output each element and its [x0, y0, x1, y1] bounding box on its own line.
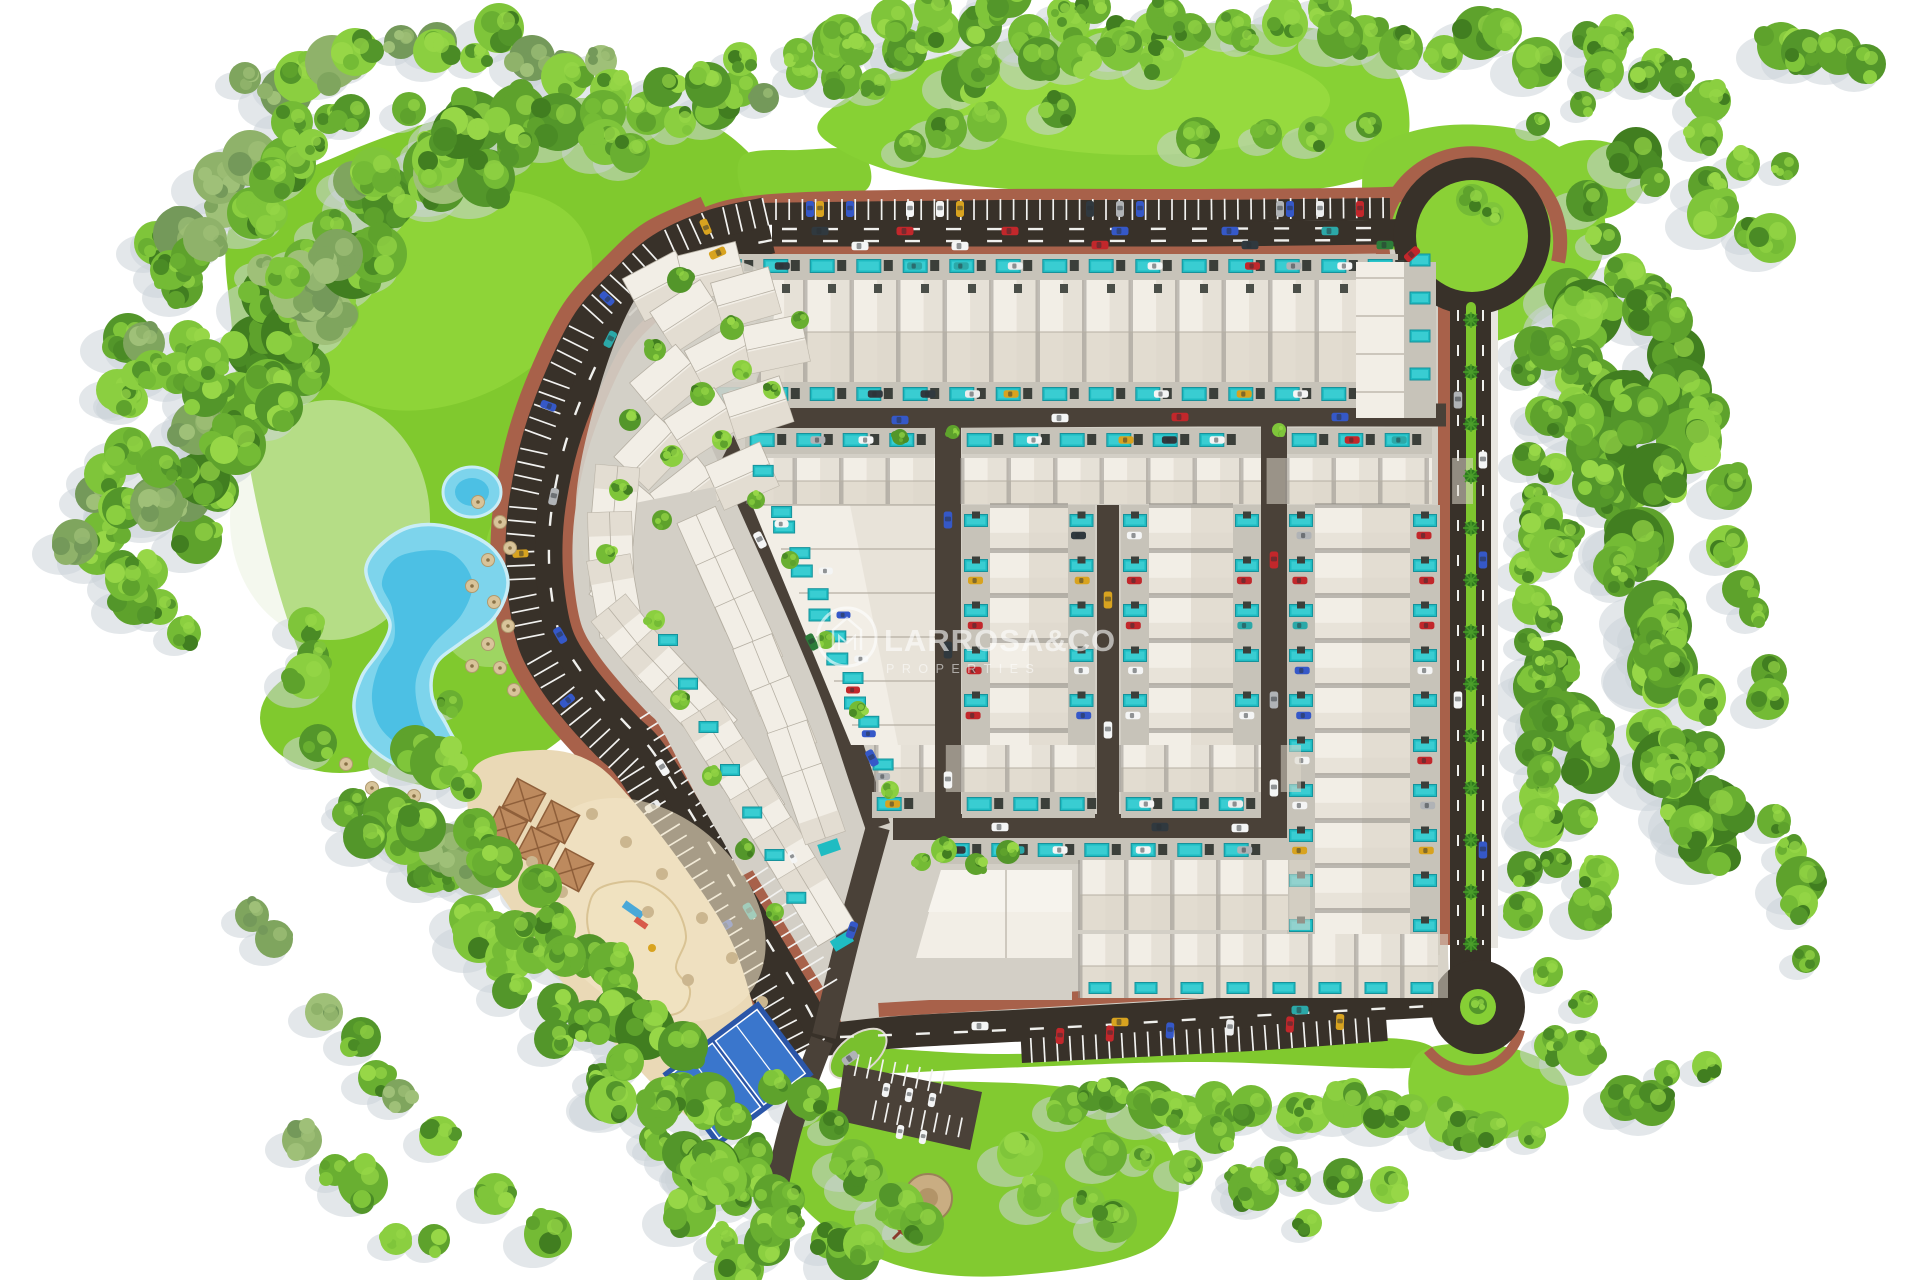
- svg-text:LARROSA&CO: LARROSA&CO: [884, 623, 1116, 658]
- svg-text:PROPERTIES: PROPERTIES: [886, 662, 1041, 676]
